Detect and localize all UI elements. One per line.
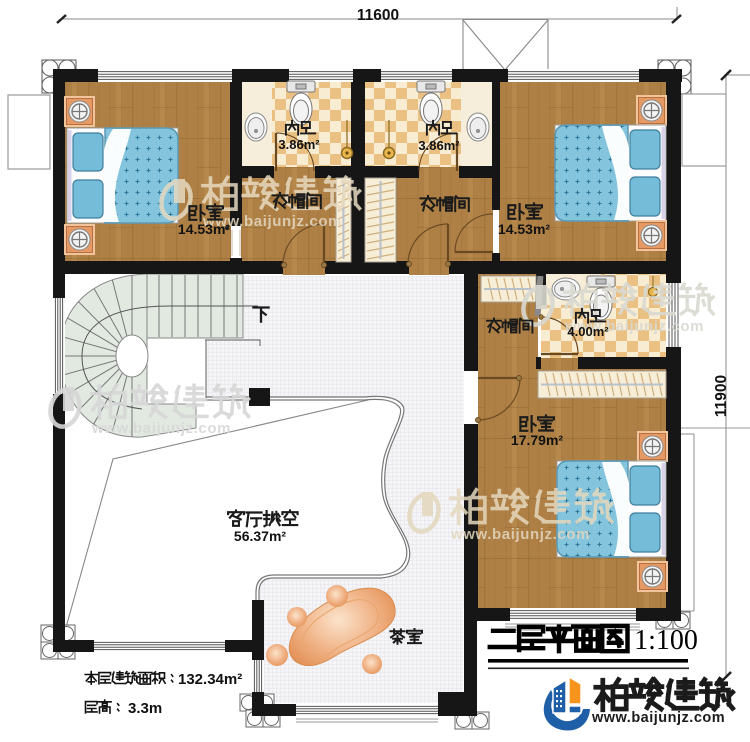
svg-text:1:100: 1:100 [634,625,698,656]
svg-text:3.86m²: 3.86m² [278,137,320,152]
svg-text:14.53m²: 14.53m² [498,221,550,237]
svg-text:www.baijunjz.com: www.baijunjz.com [450,526,590,543]
svg-text:56.37m²: 56.37m² [234,528,286,544]
svg-text:11600: 11600 [357,7,399,24]
svg-text:14.53m²: 14.53m² [178,221,230,237]
svg-text:11900: 11900 [713,375,730,417]
svg-text:3.86m²: 3.86m² [418,138,460,153]
svg-text:www.baijunjz.com: www.baijunjz.com [91,420,231,437]
svg-text:132.34m²: 132.34m² [178,671,242,688]
svg-text:17.79m²: 17.79m² [511,432,563,448]
svg-text:4.00m²: 4.00m² [567,324,609,339]
svg-text:3.3m: 3.3m [128,700,162,717]
svg-text:www.baijunjz.com: www.baijunjz.com [591,710,725,726]
